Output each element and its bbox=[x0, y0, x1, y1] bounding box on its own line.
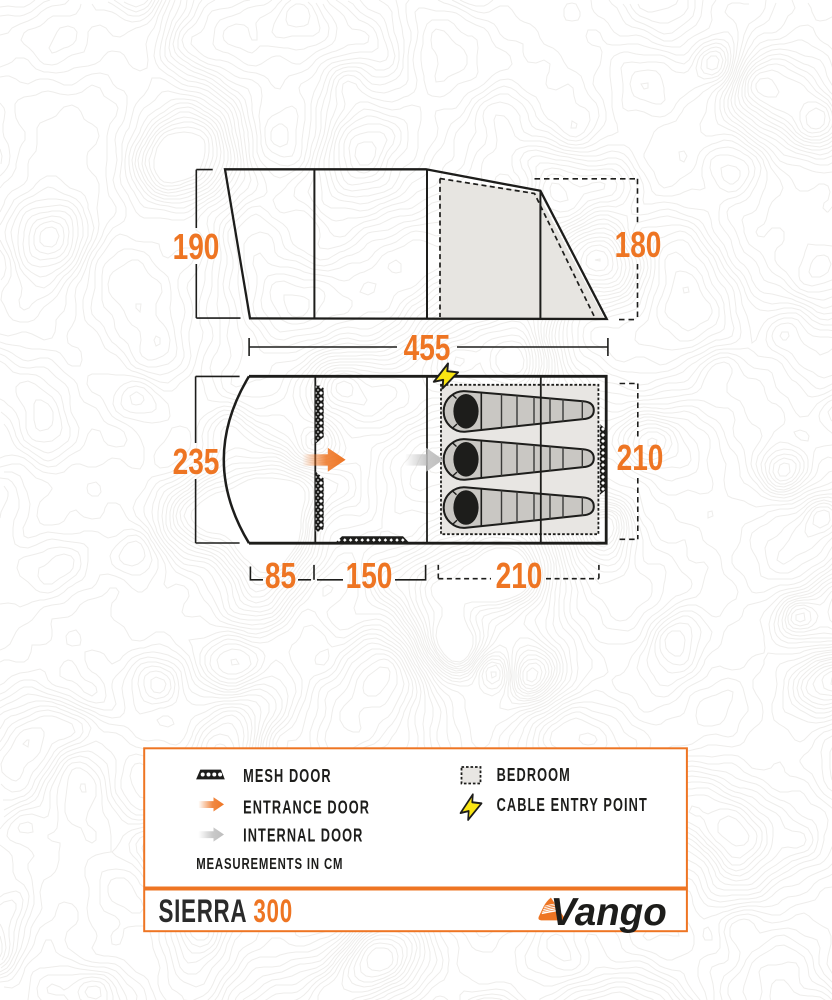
svg-text:150: 150 bbox=[346, 556, 393, 596]
svg-text:85: 85 bbox=[265, 556, 296, 596]
svg-text:455: 455 bbox=[404, 328, 451, 368]
svg-text:Vango: Vango bbox=[551, 891, 667, 934]
svg-text:SIERRA 300: SIERRA 300 bbox=[159, 893, 293, 929]
svg-text:210: 210 bbox=[617, 438, 664, 478]
svg-text:ENTRANCE DOOR: ENTRANCE DOOR bbox=[243, 798, 370, 818]
svg-text:210: 210 bbox=[496, 556, 543, 596]
svg-text:CABLE ENTRY POINT: CABLE ENTRY POINT bbox=[497, 796, 648, 816]
svg-text:MESH DOOR: MESH DOOR bbox=[243, 767, 332, 787]
svg-text:190: 190 bbox=[173, 227, 220, 267]
svg-text:180: 180 bbox=[615, 225, 662, 265]
svg-text:INTERNAL DOOR: INTERNAL DOOR bbox=[243, 826, 363, 846]
svg-text:235: 235 bbox=[173, 442, 220, 482]
svg-text:MEASUREMENTS IN CM: MEASUREMENTS IN CM bbox=[196, 854, 343, 872]
svg-text:BEDROOM: BEDROOM bbox=[497, 766, 571, 786]
